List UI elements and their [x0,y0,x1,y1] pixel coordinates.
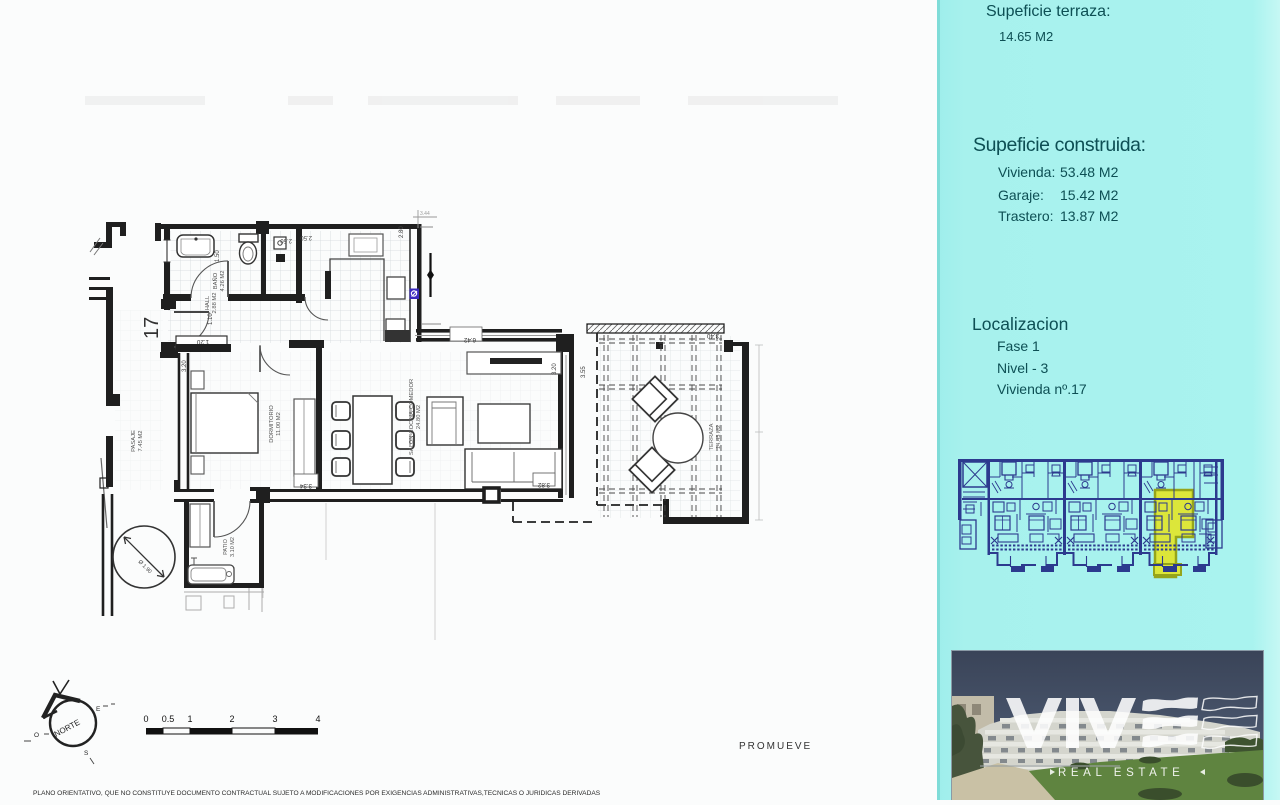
svg-text:1.50: 1.50 [215,250,221,262]
svg-text:15.42 M2: 15.42 M2 [1060,187,1119,203]
svg-text:0.5: 0.5 [162,714,175,724]
svg-text:Fase 1: Fase 1 [997,338,1040,354]
svg-text:1: 1 [187,714,192,724]
svg-text:PLANO ORIENTATIVO, QUE NO CONS: PLANO ORIENTATIVO, QUE NO CONSTITUYE DOC… [33,790,601,797]
svg-text:3.10 M2: 3.10 M2 [230,537,236,557]
svg-text:13.87 M2: 13.87 M2 [1060,208,1119,224]
svg-text:REAL ESTATE: REAL ESTATE [1058,767,1184,779]
svg-text:BAÑO: BAÑO [212,272,219,289]
svg-text:PATIO: PATIO [223,538,229,554]
svg-text:TERRAZA: TERRAZA [709,423,715,450]
svg-text:3.20: 3.20 [552,363,558,375]
svg-text:3.20: 3.20 [182,360,188,372]
svg-text:PASAJE: PASAJE [131,430,137,452]
svg-text:3.55: 3.55 [581,366,587,378]
svg-text:2: 2 [229,714,234,724]
svg-text:3.44: 3.44 [420,211,430,217]
svg-text:2.80: 2.80 [399,226,405,238]
svg-text:O: O [34,732,39,739]
svg-text:Trastero:: Trastero: [998,208,1054,224]
svg-text:Vivienda:: Vivienda: [998,164,1055,180]
svg-text:6.42: 6.42 [463,336,476,343]
svg-text:1.20: 1.20 [196,338,209,345]
svg-text:0: 0 [143,714,148,724]
svg-text:2.50: 2.50 [280,237,292,243]
svg-text:53.48 M2: 53.48 M2 [1060,164,1119,180]
svg-text:14.43 M2: 14.43 M2 [716,425,722,449]
svg-text:4: 4 [315,714,320,724]
svg-text:3.34: 3.34 [299,482,312,489]
svg-text:Nivel - 3: Nivel - 3 [997,360,1049,376]
svg-text:3: 3 [272,714,277,724]
svg-text:DORMITORIO: DORMITORIO [269,405,275,443]
svg-text:1.10: 1.10 [208,313,214,325]
svg-text:Supeficie construida:: Supeficie construida: [973,134,1146,156]
svg-text:2.88 M2: 2.88 M2 [212,293,218,314]
svg-text:14.65 M2: 14.65 M2 [999,29,1053,44]
svg-text:17: 17 [141,317,163,339]
svg-text:S: S [84,750,89,757]
svg-text:SALON-COCINA-COMEDOR: SALON-COCINA-COMEDOR [409,379,415,455]
svg-text:PROMUEVE: PROMUEVE [739,741,812,752]
svg-text:E: E [96,706,101,713]
svg-text:7.45 M2: 7.45 M2 [138,431,144,452]
svg-text:Supeficie terraza:: Supeficie terraza: [986,3,1111,20]
svg-text:3.82: 3.82 [537,481,550,488]
svg-text:4.26 M2: 4.26 M2 [220,271,226,292]
svg-text:HALL: HALL [205,295,211,310]
svg-text:Vivienda nº.17: Vivienda nº.17 [997,381,1087,397]
svg-text:Localizacion: Localizacion [972,314,1068,334]
svg-text:11.00 M2: 11.00 M2 [276,412,282,436]
svg-text:24.80 M2: 24.80 M2 [416,405,422,429]
svg-text:Garaje:: Garaje: [998,187,1044,203]
svg-text:2.50: 2.50 [300,234,312,240]
